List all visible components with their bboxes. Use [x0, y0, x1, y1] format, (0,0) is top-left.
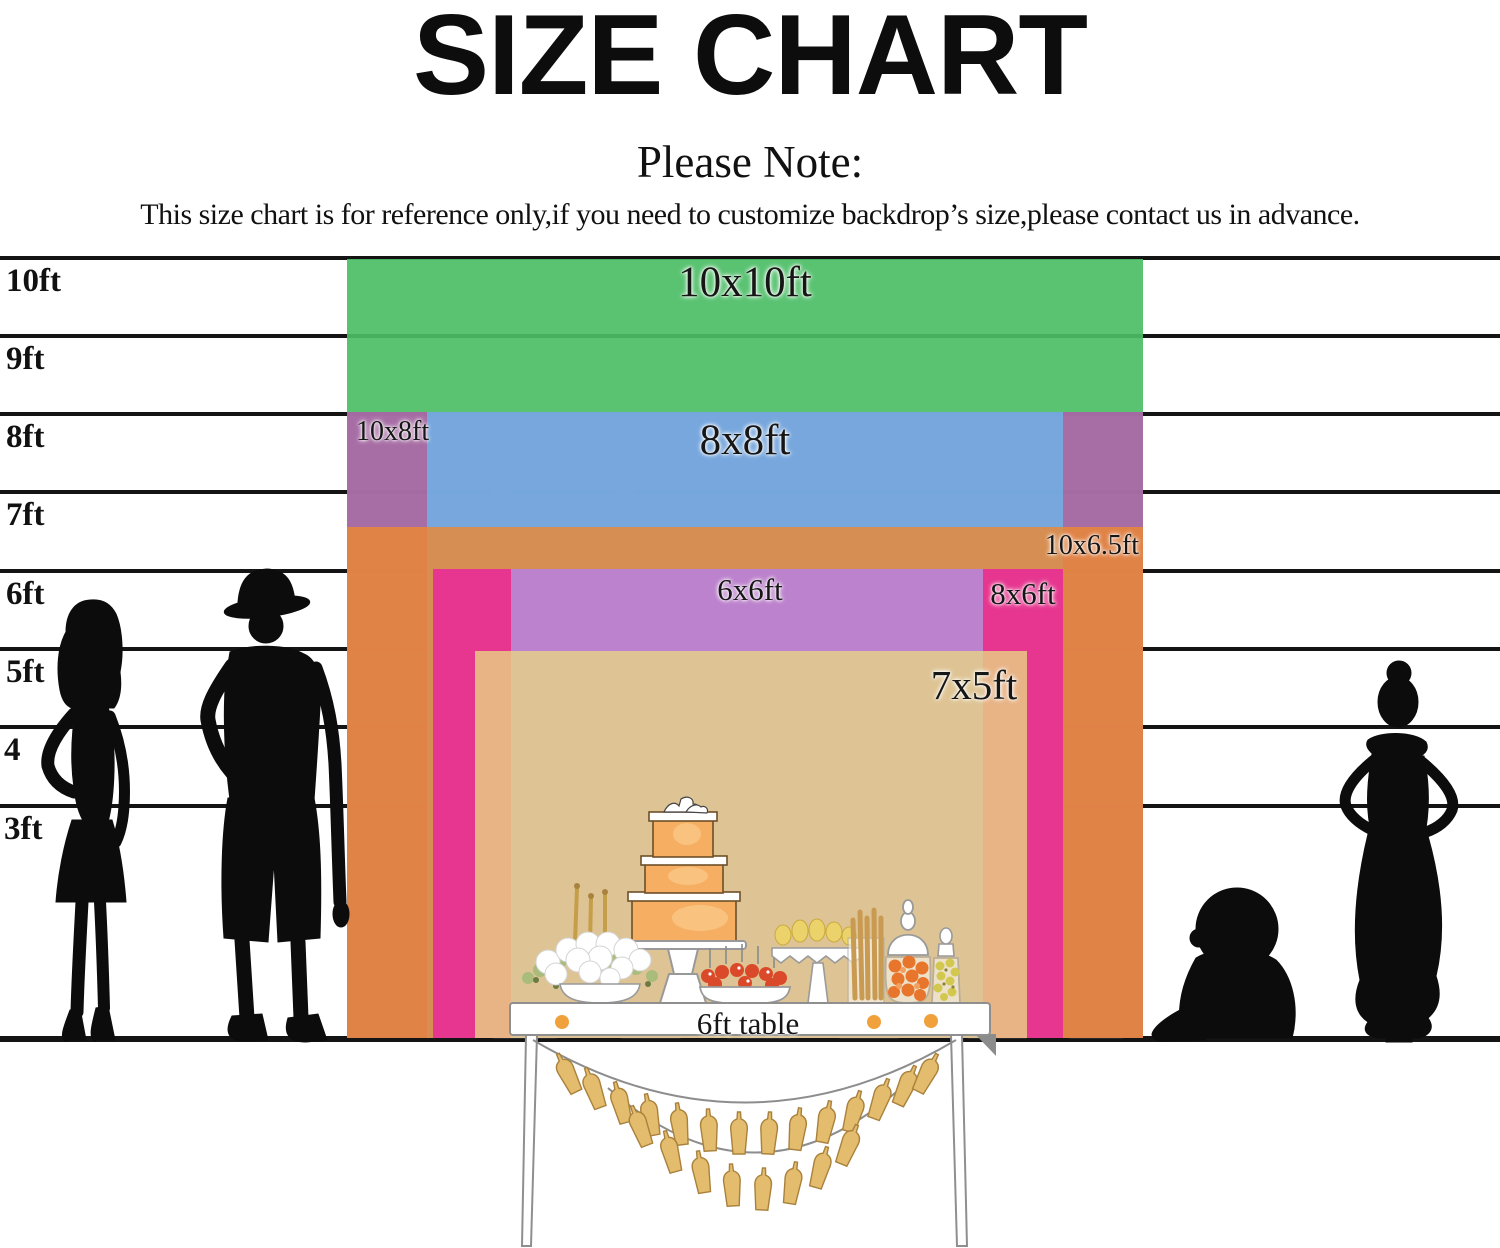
height-reference-silhouettes: [0, 0, 1500, 1248]
silhouette-man-left: [208, 569, 349, 1042]
size-chart-infographic: SIZE CHART Please Note: This size chart …: [0, 0, 1500, 1248]
silhouette-woman-right: [1345, 661, 1453, 1042]
silhouette-baby: [1152, 888, 1295, 1041]
silhouette-woman-left: [48, 600, 126, 1040]
